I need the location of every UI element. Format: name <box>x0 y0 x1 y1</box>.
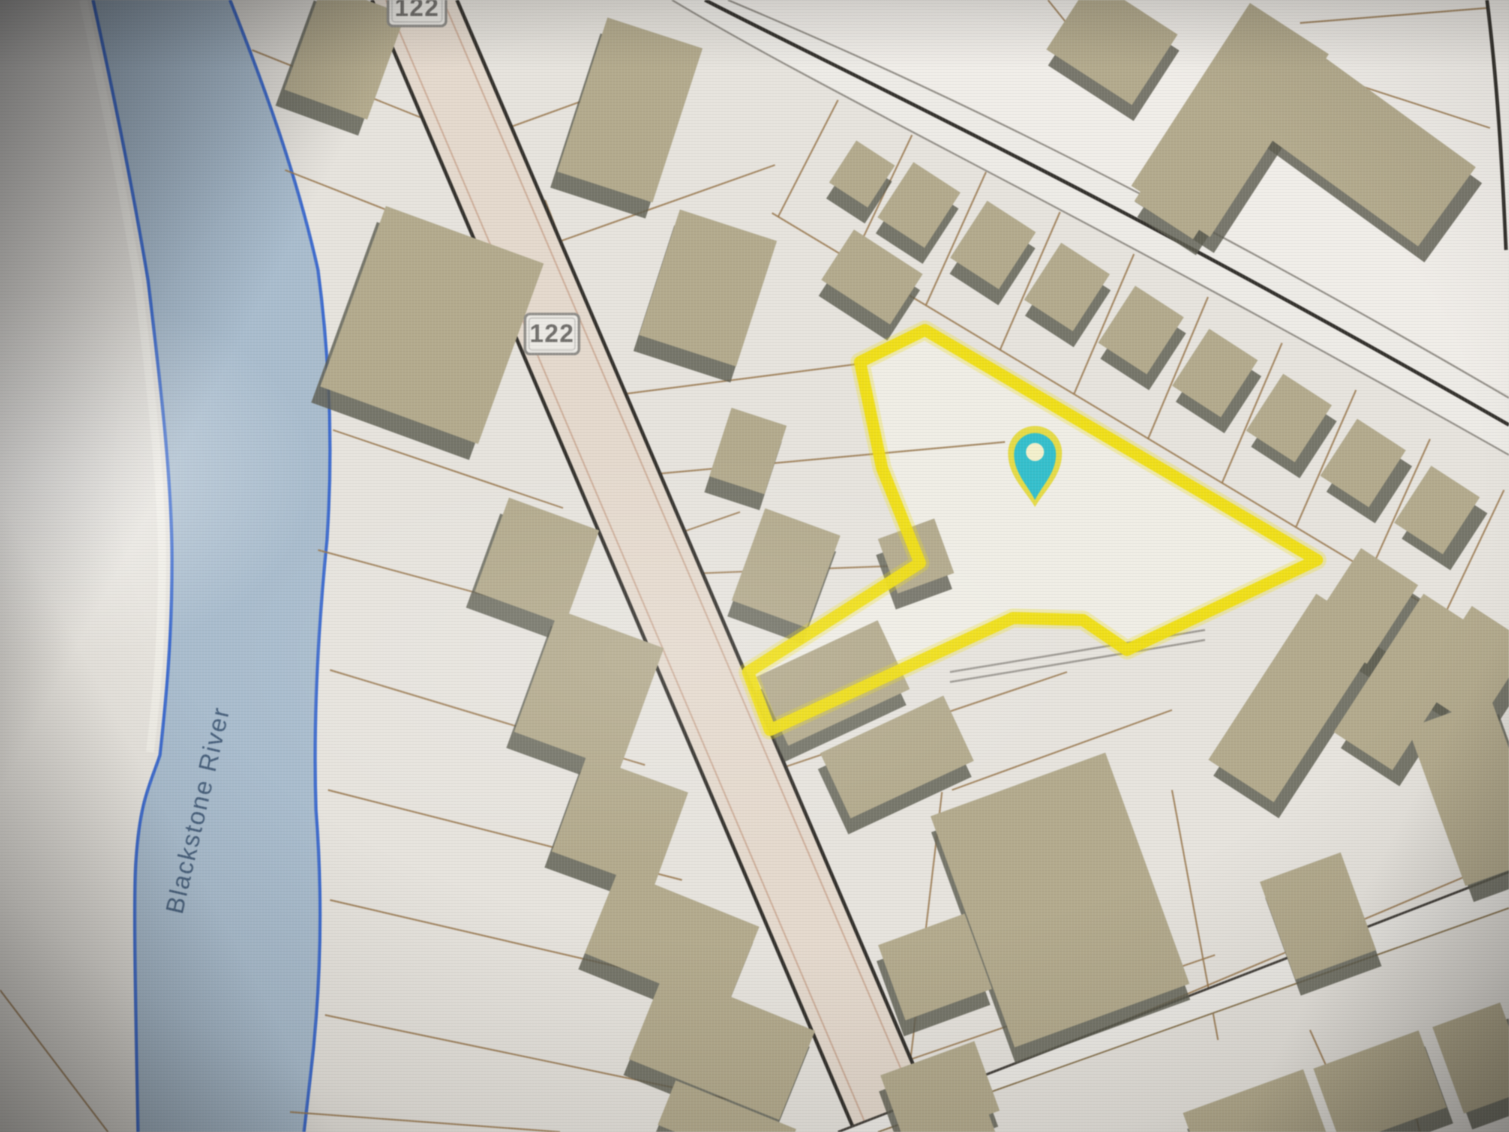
route-122-shield-mid-label: 122 <box>530 320 575 348</box>
route-122-shield-top: 122 <box>388 0 446 26</box>
route-122-shield-top-label: 122 <box>395 0 440 22</box>
map-canvas[interactable]: 122 122 Blackstone River <box>0 0 1509 1132</box>
route-122-shield-mid: 122 <box>525 314 579 354</box>
map-photo: 122 122 Blackstone River <box>0 0 1509 1132</box>
